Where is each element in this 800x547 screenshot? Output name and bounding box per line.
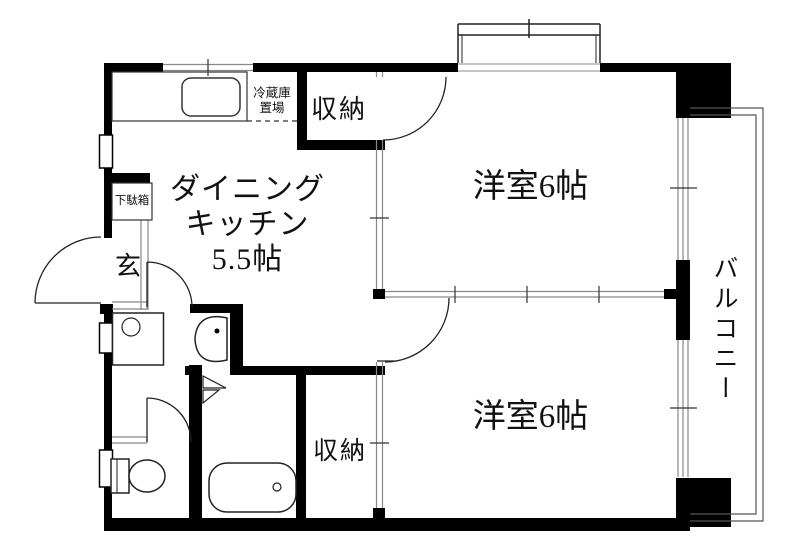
lower-bedroom-door: [377, 298, 449, 362]
shoe-cabinet-label: 下駄箱: [111, 192, 153, 208]
entry-door: [35, 237, 101, 303]
western-room-top-label: 洋室6帖: [438, 159, 623, 207]
washing-machine: [113, 313, 164, 365]
closet-top-label: 収納: [300, 89, 378, 126]
entrance-label: 玄: [113, 246, 143, 283]
western-room-bottom-label: 洋室6帖: [438, 389, 623, 437]
toilet: [111, 459, 165, 493]
closet-bottom-label: 収納: [301, 431, 379, 467]
floorplan: ダイニングキッチン5.5帖 洋室6帖 洋室6帖 収納 収納 冷蔵庫置場 下駄箱 …: [0, 0, 800, 547]
kitchen-sink: [182, 78, 240, 116]
bathroom-folding-door: [203, 376, 226, 403]
refrigerator-space-label: 冷蔵庫置場: [244, 86, 300, 116]
washbasin: [195, 317, 227, 362]
dining-kitchen-label: ダイニングキッチン5.5帖: [150, 172, 345, 277]
balcony-label: バルコニー: [705, 242, 741, 417]
fixtures: [111, 313, 296, 512]
bay-window: [458, 19, 600, 71]
toilet-door: [147, 398, 191, 442]
upper-bedroom-closet-door: [383, 77, 446, 140]
bathtub: [209, 463, 296, 512]
